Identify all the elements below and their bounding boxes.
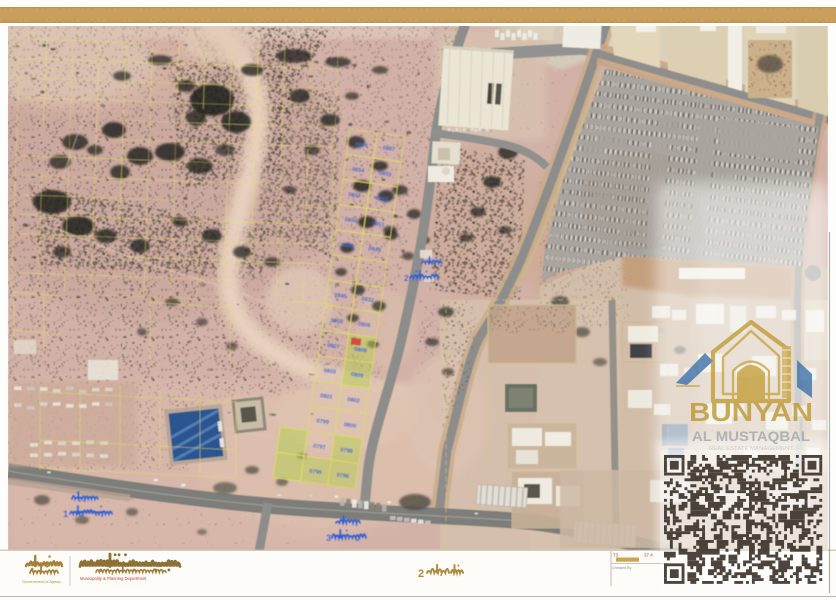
svg-text:37.4: 37.4 — [644, 553, 653, 558]
svg-text:2: 2 — [404, 273, 409, 283]
svg-text:3: 3 — [326, 533, 331, 544]
svg-text:2: 2 — [418, 568, 424, 580]
svg-text:Municipality & Planning Depart: Municipality & Planning Department — [80, 576, 147, 581]
svg-text:BUNYAN: BUNYAN — [689, 397, 813, 427]
svg-text:1: 1 — [63, 509, 69, 520]
svg-text:Checked By: Checked By — [612, 566, 632, 570]
svg-text:73: 73 — [613, 553, 619, 558]
svg-text:Government of Ajman: Government of Ajman — [22, 579, 61, 584]
svg-text:AL MUSTAQBAL: AL MUSTAQBAL — [692, 429, 810, 444]
